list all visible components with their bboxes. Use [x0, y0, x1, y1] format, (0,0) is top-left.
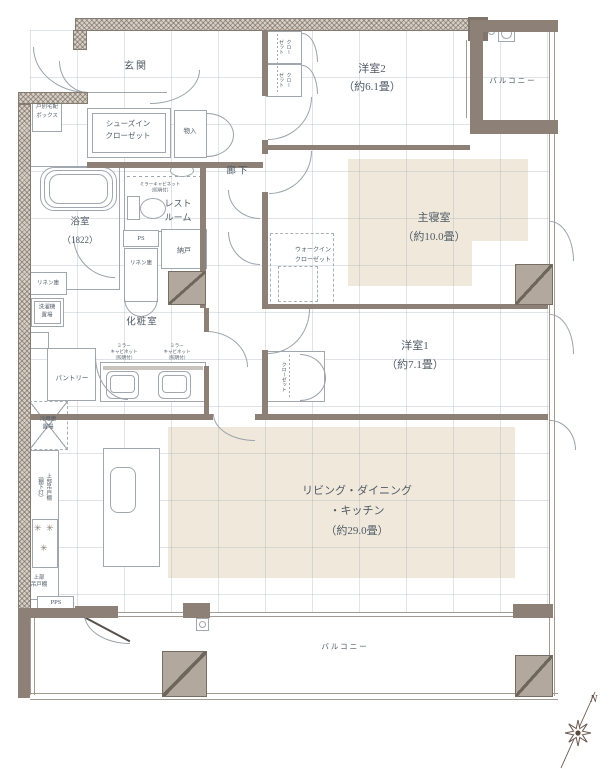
mono-door-top [207, 113, 234, 135]
bathtub-inner [49, 174, 108, 204]
island-sink [110, 467, 136, 513]
compass-north-label: N [589, 693, 598, 705]
wall-spine-a [262, 30, 268, 96]
label-restroom: レスト ルーム [164, 197, 191, 226]
pillar-balcony-right [515, 655, 553, 697]
label-mirror-2: ミラー キャビネット （照明付） [164, 343, 191, 361]
bedroom-window-fan [550, 221, 574, 261]
burner-icon: ✳ [46, 524, 54, 534]
highlight-main-bedroom-lower [348, 240, 472, 286]
pillar-balcony-left [162, 651, 207, 697]
toilet-tank [127, 196, 140, 220]
balcony-outer-rail [30, 693, 558, 700]
linen-tall-box [124, 248, 158, 302]
label-balcony-upper: バルコニー [489, 75, 536, 87]
window-mullion-2 [183, 603, 210, 618]
label-laundry: 洗濯機 置場 [39, 304, 56, 319]
label-hanging-cabinet2: 上部 吊戸棚 [31, 575, 48, 589]
ldk-window-band [60, 612, 548, 617]
wall-balcony-left [18, 608, 30, 698]
label-hanging-cabinet: 上部吊戸棚 （棚下灯） [36, 473, 53, 501]
window-mullion-3 [513, 604, 553, 618]
label-main-bedroom-size: （約10.0畳） [402, 229, 465, 247]
label-bath-size: （1822） [62, 233, 98, 247]
wall-spine-d [262, 350, 268, 420]
window-mullion-1 [75, 606, 118, 618]
wall-powder-a [204, 308, 209, 332]
bedroom2-door-arc [268, 97, 312, 140]
bedroom1-window-fan [550, 314, 574, 354]
exterior-wall-left [18, 104, 31, 612]
label-mirror-rest: ミラーキャビネット （照明付） [140, 182, 181, 195]
exterior-wall-left-stub [73, 30, 87, 50]
label-bedroom2-size: （約6.1畳） [343, 79, 401, 97]
exterior-wall-top [75, 18, 470, 31]
label-ldk-2: ・キッチン [330, 503, 385, 521]
label-nando: 納戸 [177, 245, 191, 256]
label-ldk-3: （約29.0畳） [325, 523, 388, 541]
label-pantry: パントリー [56, 374, 89, 384]
balcony-wall-side [470, 29, 483, 122]
pillar-center [168, 271, 206, 305]
label-delivery-box: 戸別宅配 ボックス [36, 103, 58, 121]
compass-center [575, 730, 580, 735]
ps2-box [28, 332, 49, 349]
label-closet-b: クロー ゼット [277, 73, 292, 88]
label-linen-small: リネン庫 [37, 280, 59, 289]
label-ldk-1: リビング・ダイニング [302, 483, 412, 501]
genkan-hall-door-arc [150, 70, 200, 104]
label-mirror-1: ミラー キャビネット （照明付） [111, 343, 138, 361]
label-main-bedroom-name: 主寝室 [418, 210, 451, 228]
balcony-left-rail [30, 617, 35, 695]
label-linen-tall: リネン庫 [130, 260, 152, 269]
wic-inner [278, 266, 318, 302]
toilet-bowl [140, 198, 166, 219]
corridor-door-arc-1 [228, 190, 260, 219]
pillar-right-mid [515, 264, 553, 305]
wall-ldk-top-right [255, 414, 548, 420]
wall-spine-c [262, 192, 268, 308]
closet1-rail [289, 355, 290, 398]
closet2-door-a [302, 33, 318, 62]
corridor-door-arc-2 [228, 232, 260, 265]
wall-ldk-top-left [30, 414, 213, 420]
linen-door-right [141, 298, 158, 317]
balcony-wall-bottom [470, 120, 558, 134]
mono-door-bottom [207, 135, 234, 157]
bedroom-main-door-arc [269, 151, 312, 194]
label-closet1: クローゼット [279, 362, 287, 392]
basin-2-inner [162, 375, 187, 393]
label-sic: シューズイン クローゼット [106, 118, 151, 142]
label-pps: PPS [51, 598, 62, 608]
label-balcony-lower: バルコニー [321, 641, 368, 653]
label-closet-a: クロー ゼット [277, 40, 292, 55]
label-wic: ウォークイン クローゼット [295, 246, 331, 265]
label-bedroom2-name: 洋室2 [358, 61, 386, 79]
bedroom1-door-arc [268, 309, 310, 354]
wall-bedroom-bottom [262, 304, 548, 309]
linen-door-left [124, 298, 141, 317]
wall-powder-b [204, 366, 209, 414]
label-genkan: 玄関 [124, 59, 148, 75]
label-bedroom1-size: （約7.1畳） [386, 357, 444, 375]
label-ps1: PS [137, 234, 144, 244]
burner-icon: ✳ [40, 544, 48, 554]
compass-rose: N [550, 688, 606, 769]
label-powder-room: 化粧室 [126, 315, 158, 330]
label-mono: 物入 [184, 127, 197, 137]
ldk-window-fan [550, 420, 576, 450]
label-corridor: 廊下 [226, 164, 249, 179]
restroom-counter-dashed [127, 176, 205, 177]
floor-plan: ✳ ✳ ✳ 玄関 戸別宅配 ボックス シューズイン クローゼット 物入 クロー … [0, 0, 609, 769]
lower-balcony-faucet-icon [199, 621, 206, 628]
balcony-wall-top [470, 20, 558, 32]
powder-door-arc [206, 331, 248, 367]
wall-bedroom-top [268, 145, 470, 150]
exterior-wall-alcove [18, 92, 88, 104]
closet2-door-b [302, 65, 318, 94]
burner-icon: ✳ [34, 524, 42, 534]
label-bedroom1-name: 洋室1 [401, 338, 429, 356]
label-bath-name: 浴室 [70, 215, 89, 230]
label-fridge: 冷蔵庫 置場 [40, 416, 57, 431]
balcony-door-arc [84, 614, 130, 644]
